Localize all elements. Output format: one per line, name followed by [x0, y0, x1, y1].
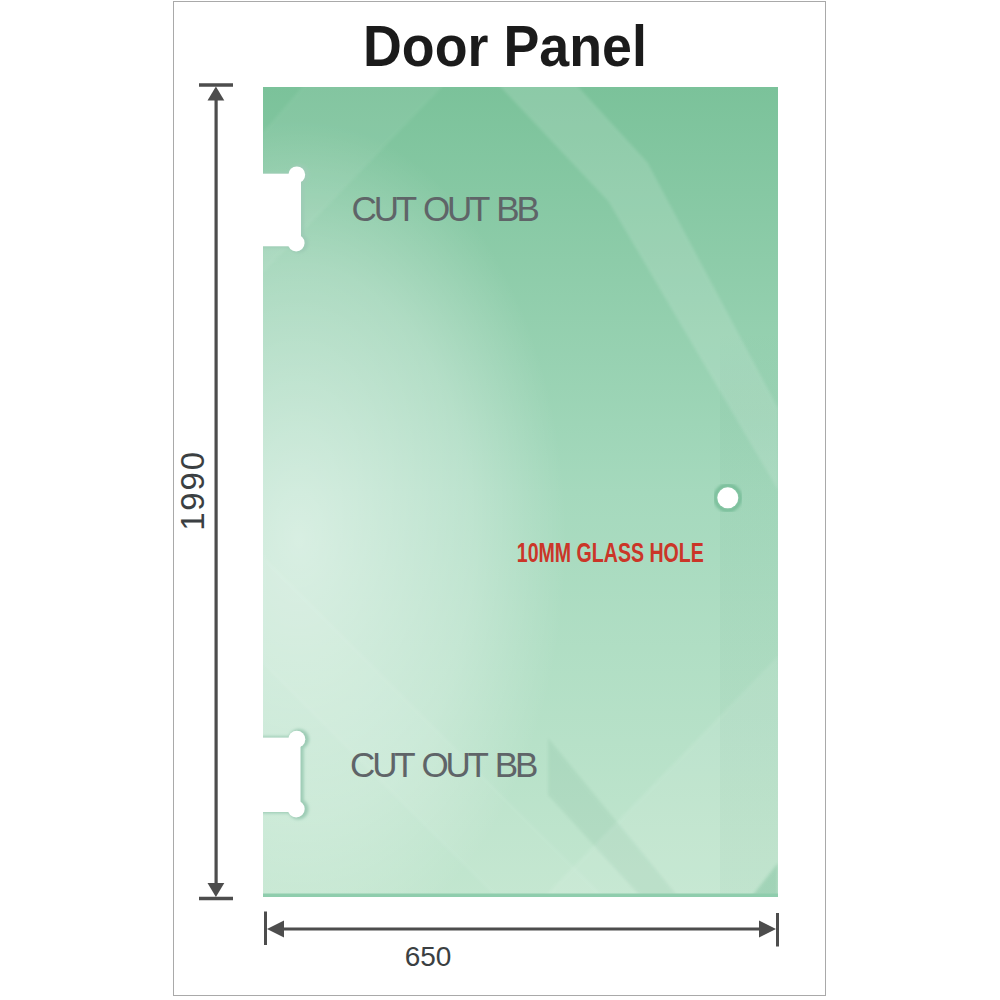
svg-text:650: 650 — [405, 941, 452, 972]
svg-text:CUT OUT BB: CUT OUT BB — [350, 745, 537, 784]
svg-text:10MM GLASS HOLE: 10MM GLASS HOLE — [517, 537, 704, 568]
svg-text:Door Panel: Door Panel — [363, 14, 647, 78]
svg-text:1990: 1990 — [174, 450, 211, 531]
svg-text:CUT OUT BB: CUT OUT BB — [352, 189, 539, 228]
